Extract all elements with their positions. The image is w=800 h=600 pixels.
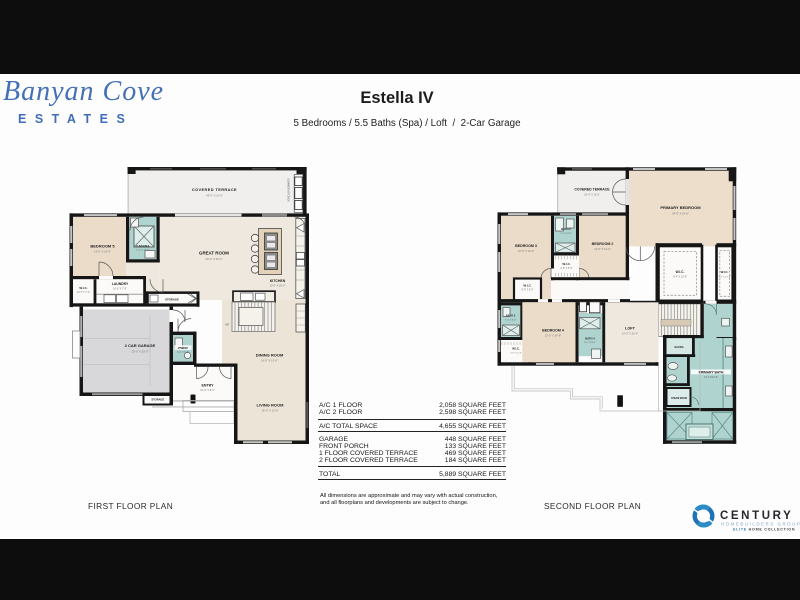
svg-text:LOFT: LOFT — [625, 327, 636, 331]
svg-text:W.I.C.: W.I.C. — [562, 262, 570, 266]
svg-text:CENTURY: CENTURY — [720, 510, 793, 522]
svg-text:7'-2" X 11'-0": 7'-2" X 11'-0" — [136, 249, 150, 252]
svg-text:LAUNDRY: LAUNDRY — [112, 282, 129, 286]
svg-text:10'-6" X 7'-0": 10'-6" X 7'-0" — [113, 288, 127, 291]
svg-text:20'-0" X 20'-0": 20'-0" X 20'-0" — [132, 349, 149, 353]
svg-text:12'-0" X 14'-0": 12'-0" X 14'-0" — [518, 249, 534, 253]
svg-text:16'-0" X 13'-0": 16'-0" X 13'-0" — [262, 408, 279, 412]
svg-text:LIVING ROOM: LIVING ROOM — [257, 402, 285, 407]
svg-text:CABANA: CABANA — [136, 244, 150, 248]
svg-text:ENTRY: ENTRY — [201, 383, 214, 387]
svg-text:7'-5" X 8'-2": 7'-5" X 8'-2" — [560, 233, 572, 235]
svg-text:BATH 4: BATH 4 — [585, 336, 595, 340]
svg-text:24'-0" X 16'-0": 24'-0" X 16'-0" — [672, 211, 689, 215]
svg-text:13'-0" X 20'-0": 13'-0" X 20'-0" — [622, 332, 638, 336]
svg-text:0'-6" X 5'-0": 0'-6" X 5'-0" — [561, 268, 573, 270]
svg-text:GREAT ROOM: GREAT ROOM — [199, 251, 229, 256]
svg-text:SAUNA: SAUNA — [674, 345, 683, 349]
svg-text:3'-9" X 5'-9": 3'-9" X 5'-9" — [510, 352, 522, 354]
svg-text:DINING ROOM: DINING ROOM — [256, 352, 284, 357]
svg-text:3'-4" X 6'-8": 3'-4" X 6'-8" — [177, 352, 189, 354]
svg-text:BATH 2: BATH 2 — [561, 227, 571, 231]
svg-text:BATH 3: BATH 3 — [506, 314, 516, 318]
svg-text:2 CAR GARAGE: 2 CAR GARAGE — [125, 343, 156, 348]
svg-text:KITCHEN: KITCHEN — [270, 279, 286, 283]
svg-text:BEDROOM 4: BEDROOM 4 — [542, 329, 564, 333]
svg-text:BEDROOM 5: BEDROOM 5 — [90, 244, 115, 249]
svg-text:16'-4" X 11'-0": 16'-4" X 11'-0" — [584, 194, 600, 197]
svg-text:12'-0" X 14'-8": 12'-0" X 14'-8" — [545, 334, 561, 338]
svg-text:PWDR: PWDR — [178, 346, 188, 350]
svg-text:COVERED TERRACE: COVERED TERRACE — [192, 187, 237, 192]
svg-text:12'-0" X 14'-0": 12'-0" X 14'-0" — [594, 247, 610, 251]
svg-text:BEDROOM 3: BEDROOM 3 — [515, 244, 537, 248]
svg-text:10'-0" X 8'-0": 10'-0" X 8'-0" — [200, 389, 215, 392]
svg-text:STEAM ROOM: STEAM ROOM — [671, 397, 687, 400]
svg-text:COVERED TERRACE: COVERED TERRACE — [574, 188, 610, 192]
svg-text:W.I.C.: W.I.C. — [79, 286, 87, 290]
svg-text:UP: UP — [225, 323, 229, 327]
svg-text:HOMEBUILDERS GROUP: HOMEBUILDERS GROUP — [721, 522, 800, 527]
svg-text:10'-0" X 20'-0": 10'-0" X 20'-0" — [270, 285, 286, 288]
svg-text:PRIMARY BATH: PRIMARY BATH — [699, 370, 724, 374]
svg-text:43'-0" X 11'-0": 43'-0" X 11'-0" — [206, 194, 223, 198]
svg-text:W.I.C.: W.I.C. — [676, 270, 685, 274]
svg-text:W.I.C.: W.I.C. — [721, 270, 729, 274]
svg-text:STORAGE: STORAGE — [151, 397, 164, 401]
svg-text:STORAGE: STORAGE — [165, 298, 179, 302]
svg-text:10' 6" X 7'-0": 10' 6" X 7'-0" — [77, 292, 90, 294]
svg-text:SUMMER KITCHEN: SUMMER KITCHEN — [287, 178, 291, 202]
svg-text:BEDROOM 2: BEDROOM 2 — [592, 242, 614, 246]
svg-text:ELITE HOME COLLECTION: ELITE HOME COLLECTION — [733, 528, 795, 532]
svg-text:5'-9" X 5'-0": 5'-9" X 5'-0" — [522, 290, 534, 292]
svg-text:20'-0" X 20'-0": 20'-0" X 20'-0" — [206, 257, 223, 261]
svg-text:PRIMARY BEDROOM: PRIMARY BEDROOM — [660, 205, 701, 210]
svg-text:W.I.C.: W.I.C. — [512, 347, 520, 351]
svg-text:5'-0" X 9'-0": 5'-0" X 9'-0" — [584, 342, 596, 344]
svg-text:9'-4" X 13'-8": 9'-4" X 13'-8" — [673, 275, 687, 278]
svg-text:7'-0" X 6'-5": 7'-0" X 6'-5" — [505, 319, 517, 321]
svg-text:16'-0" X 13'-0": 16'-0" X 13'-0" — [261, 358, 278, 362]
svg-text:W.I.C.: W.I.C. — [523, 284, 531, 288]
svg-text:13'-0" X 14'-0": 13'-0" X 14'-0" — [94, 250, 111, 254]
svg-text:10'-4"X24'-8": 10'-4"X24'-8" — [704, 376, 718, 379]
svg-text:3'-4" X 13'-8": 3'-4" X 13'-8" — [718, 276, 731, 278]
